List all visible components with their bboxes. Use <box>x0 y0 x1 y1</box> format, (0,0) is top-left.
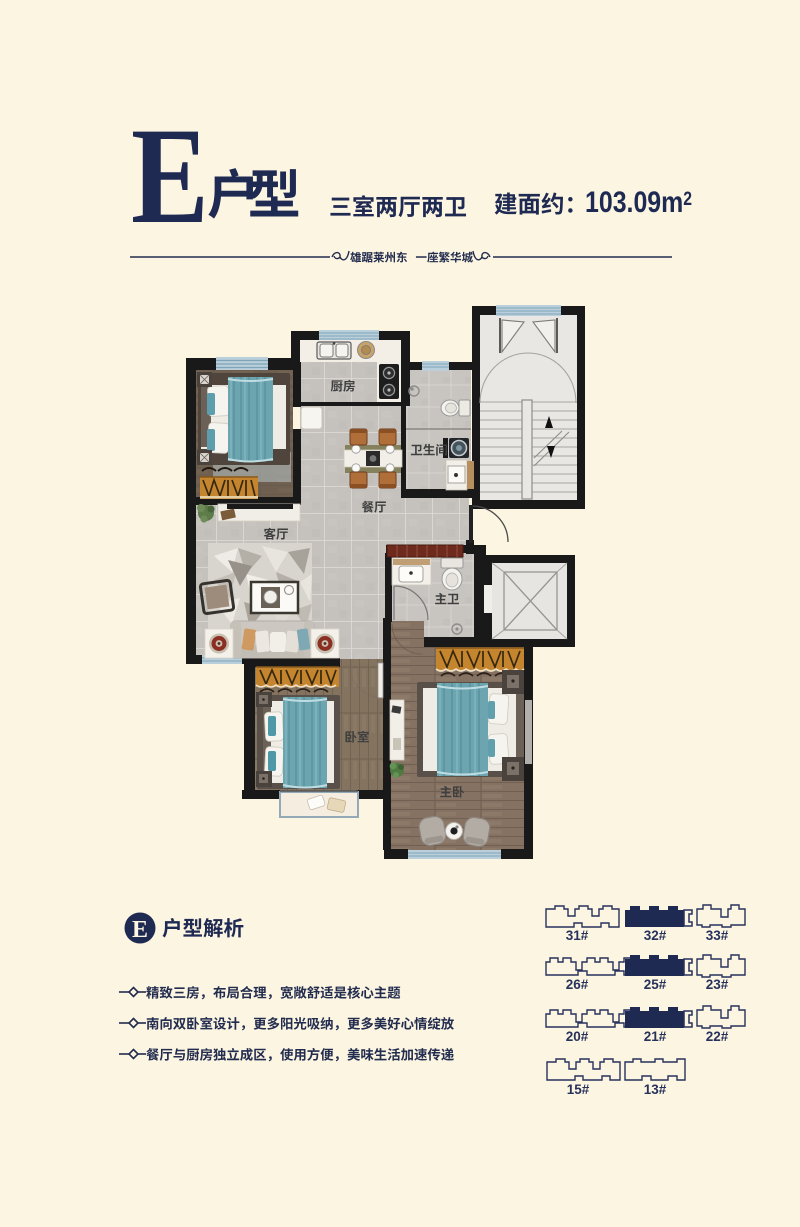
svg-text:E: E <box>132 917 148 943</box>
